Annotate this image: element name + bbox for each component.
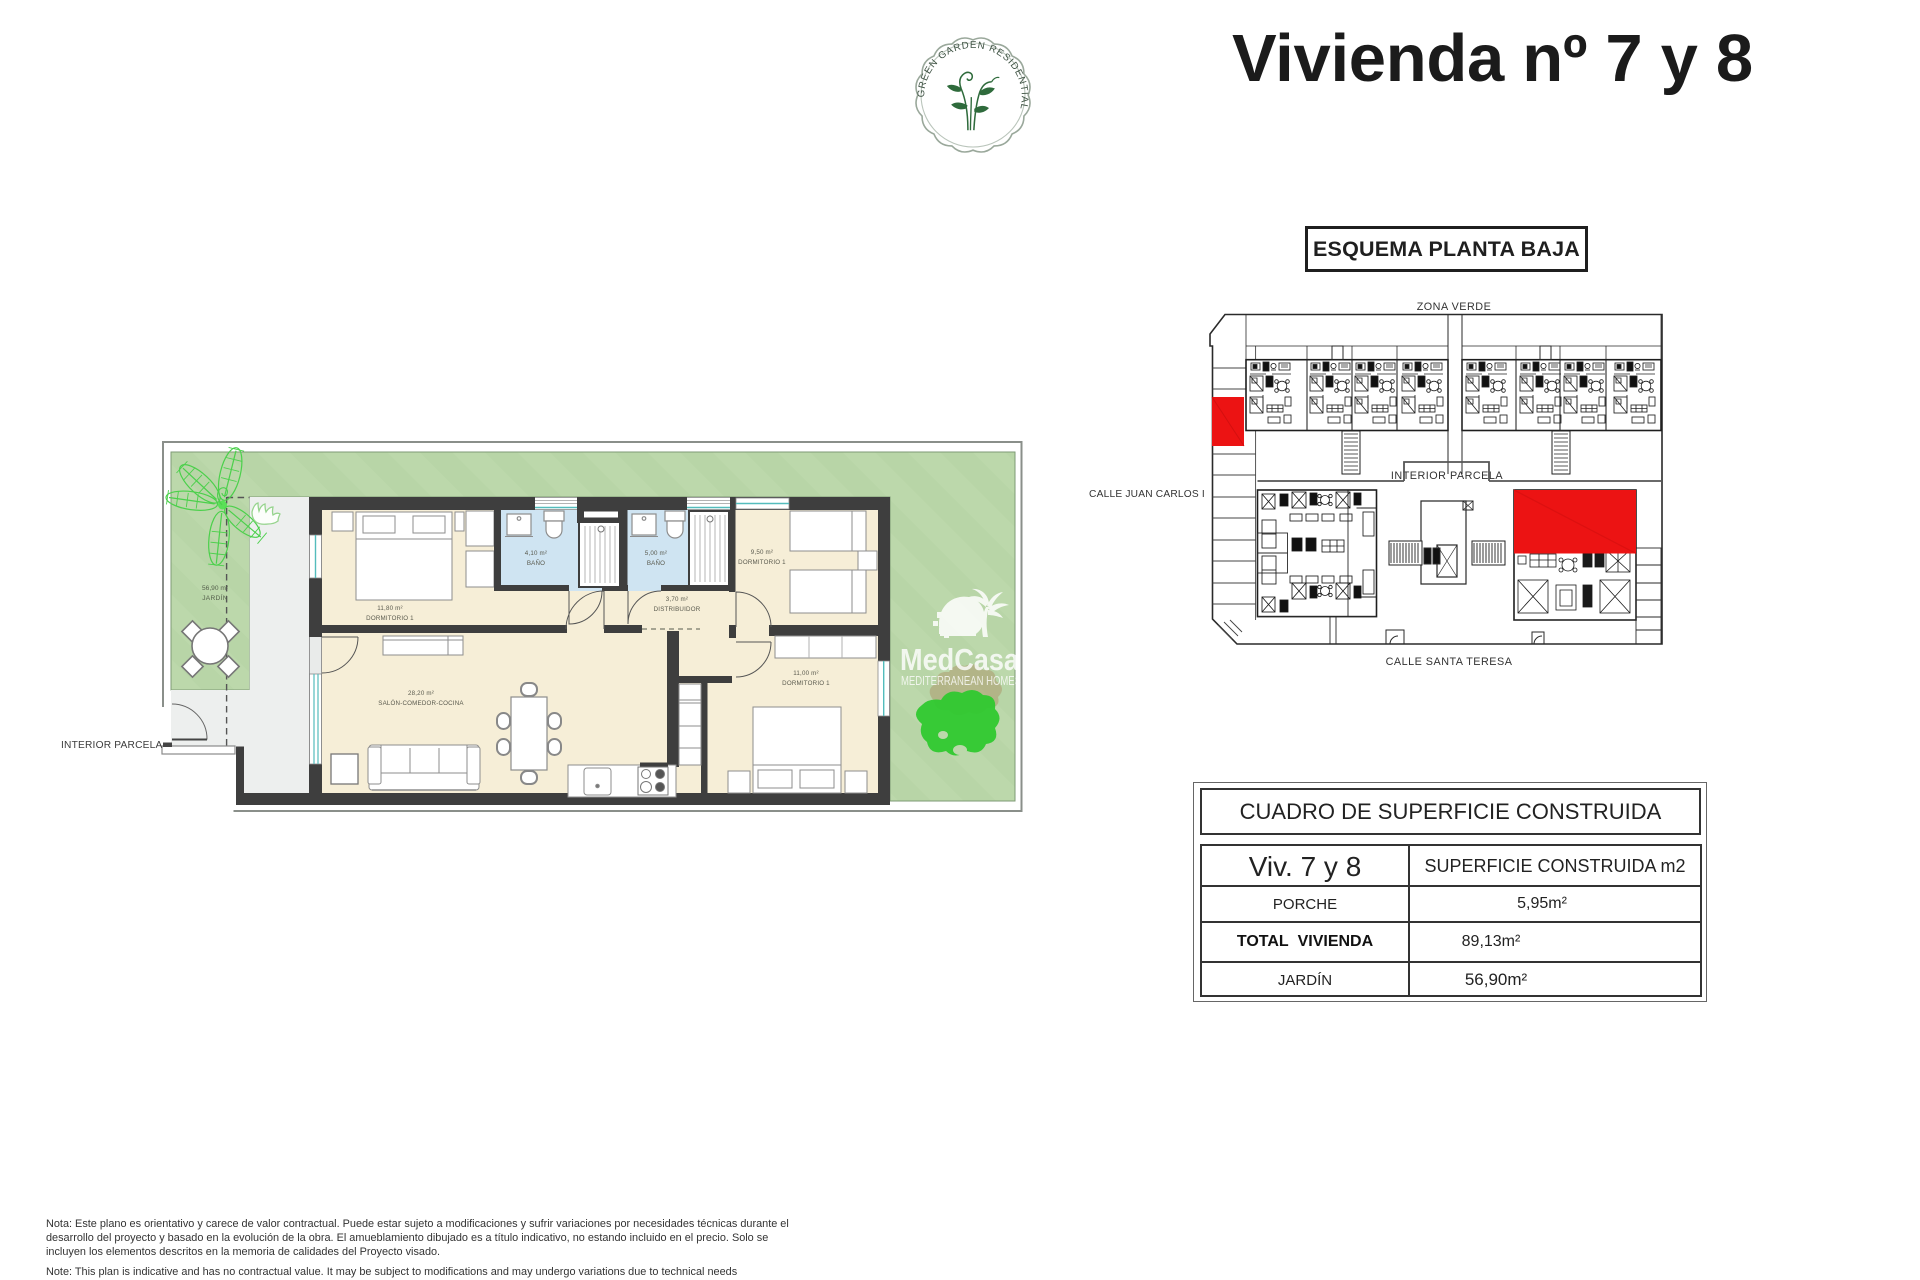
svg-text:BAÑO: BAÑO: [527, 560, 545, 567]
svg-text:BAÑO: BAÑO: [647, 560, 665, 567]
svg-text:DORMITORIO 1: DORMITORIO 1: [738, 559, 786, 566]
svg-text:3,70 m²: 3,70 m²: [666, 596, 688, 603]
svg-text:ZONA VERDE: ZONA VERDE: [1417, 301, 1492, 313]
svg-text:DISTRIBUIDOR: DISTRIBUIDOR: [654, 606, 701, 613]
svg-text:56,90 m²: 56,90 m²: [202, 585, 229, 592]
svg-text:MEDITERRANEAN HOMES: MEDITERRANEAN HOMES: [901, 674, 1021, 688]
svg-text:MedCasa: MedCasa: [900, 642, 1020, 677]
svg-text:4,10 m²: 4,10 m²: [525, 550, 547, 557]
svg-text:DORMITORIO 1: DORMITORIO 1: [366, 615, 414, 622]
svg-text:INTERIOR PARCELA: INTERIOR PARCELA: [1391, 470, 1503, 482]
svg-text:5,00 m²: 5,00 m²: [645, 550, 667, 557]
svg-text:9,50 m²: 9,50 m²: [751, 549, 773, 556]
svg-text:DORMITORIO 1: DORMITORIO 1: [782, 680, 830, 687]
svg-text:28,20 m²: 28,20 m²: [408, 690, 434, 697]
svg-text:CALLE SANTA TERESA: CALLE SANTA TERESA: [1386, 656, 1513, 668]
svg-text:11,00 m²: 11,00 m²: [793, 670, 819, 677]
svg-text:JARDÍN: JARDÍN: [202, 593, 228, 602]
svg-text:SALÓN-COMEDOR-COCINA: SALÓN-COMEDOR-COCINA: [378, 700, 464, 707]
svg-text:GREEN GARDEN RESIDENTIAL: GREEN GARDEN RESIDENTIAL: [916, 40, 1030, 111]
svg-text:CALLE JUAN CARLOS I: CALLE JUAN CARLOS I: [1089, 489, 1205, 500]
svg-text:11,80 m²: 11,80 m²: [377, 605, 403, 612]
